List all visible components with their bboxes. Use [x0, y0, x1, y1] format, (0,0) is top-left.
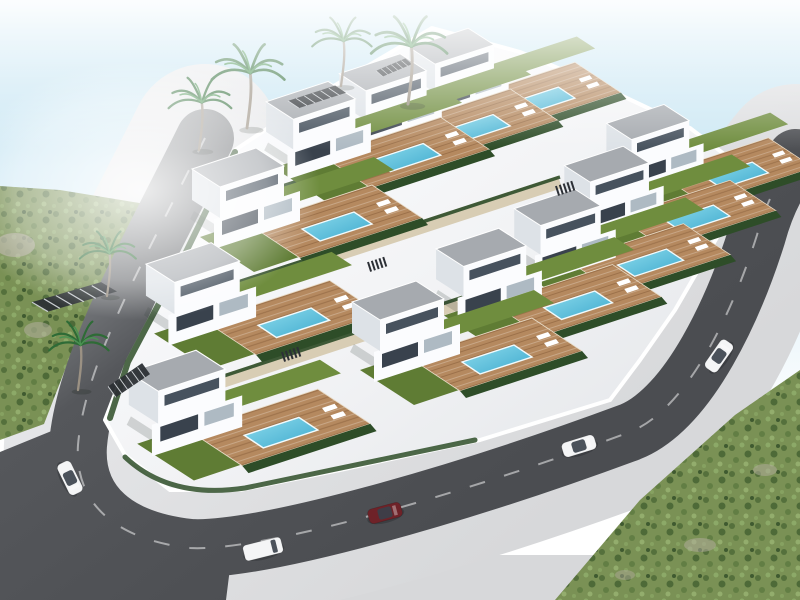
rock-patch — [24, 322, 52, 338]
fog-overlay-left — [0, 60, 320, 320]
render-canvas — [0, 0, 800, 600]
